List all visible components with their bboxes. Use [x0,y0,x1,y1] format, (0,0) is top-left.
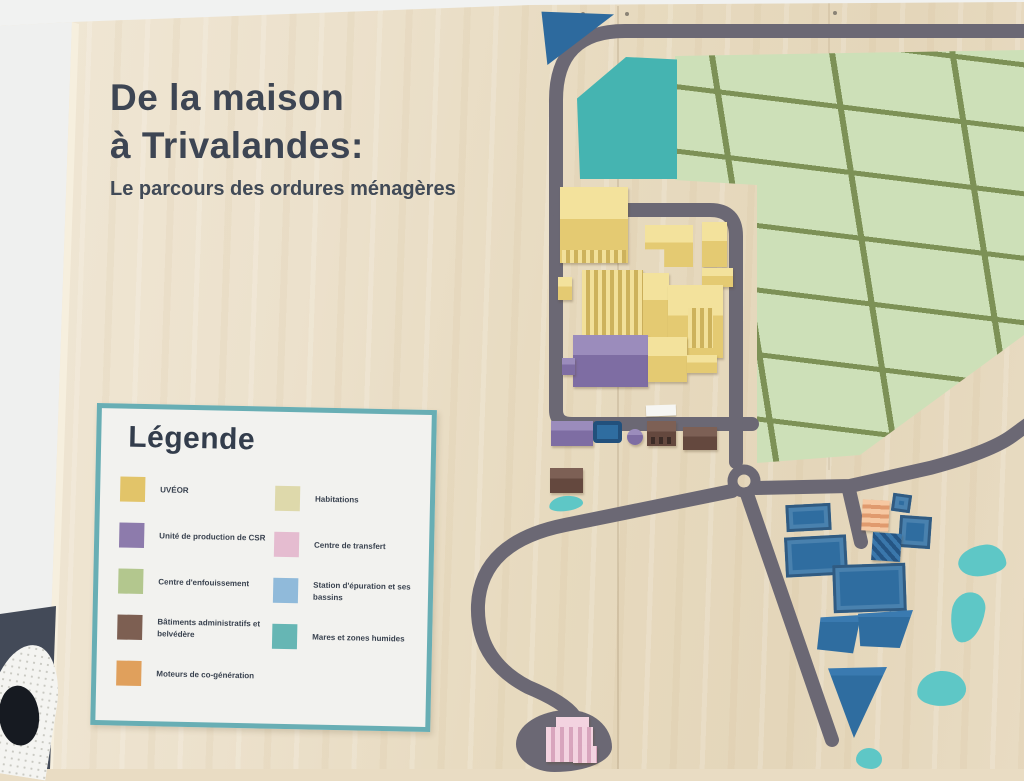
legend-swatch [119,522,145,548]
transfer-center-annex [573,746,597,763]
legend-swatch [275,486,301,512]
legend-swatch [272,624,298,650]
legend-card: Légende UVÉOR Unité de production de CSR… [90,403,437,732]
csr-unit-annex [562,358,575,375]
southwest-road [478,491,732,716]
cogeneration-building [861,499,890,531]
admin-building-doors [651,437,673,444]
legend-item-mares: Mares et zones humides [272,624,430,652]
roundabout [733,470,756,493]
legend-swatch [274,532,300,558]
uveor-tower [643,273,669,337]
uveor-building [702,222,727,267]
csr-unit-building [573,335,648,387]
legend-label: Station d'épuration et ses bassins [313,580,431,605]
uveor-building [648,337,687,382]
play-structure-hole [0,684,42,747]
legend-label: Centre de transfert [314,539,432,553]
legend-swatch [118,568,144,594]
basin [832,563,907,614]
uveor-building [558,277,572,300]
legend-label: Habitations [315,493,433,507]
legend-column-left: UVÉOR Unité de production de CSR Centre … [116,477,278,689]
road-sign [646,404,676,416]
legend-swatch [273,578,299,604]
purple-silo [627,429,643,445]
legend-item-epuration: Station d'épuration et ses bassins [273,578,431,606]
road-stub [849,490,861,542]
legend-label: Unité de production de CSR [159,530,277,544]
legend-item-enfouissement: Centre d'enfouissement [118,568,276,596]
wooden-display-board: De la maison à Trivalandes: Le parcours … [0,0,1024,769]
uveor-vents [688,308,713,348]
blue-tank [593,421,622,443]
legend-label: Moteurs de co-génération [156,668,274,682]
legend-item-moteurs: Moteurs de co-génération [116,660,274,688]
legend-label: UVÉOR [160,484,278,498]
basin [891,493,912,513]
legend-item-csr: Unité de production de CSR [119,522,277,550]
uveor-dock-doors [562,250,626,263]
legend-title: Légende [128,421,256,458]
legend-swatch [116,660,142,686]
legend-swatch [120,477,146,503]
admin-building [550,468,583,493]
legend-item-batiments: Bâtiments administratifs et belvédère [117,614,275,642]
legend-column-right: Habitations Centre de transfert Station … [272,486,433,652]
purple-service-building [551,421,593,446]
uveor-sawtooth-hall [582,270,643,335]
legend-label: Mares et zones humides [312,631,430,645]
legend-label: Bâtiments administratifs et belvédère [157,617,275,642]
aeration-basin [871,532,902,562]
pond [856,748,882,769]
legend-swatch [117,614,143,640]
legend-item-uveor: UVÉOR [120,477,278,505]
uveor-building [687,355,717,373]
basin [785,503,831,532]
legend-item-transfert: Centre de transfert [274,532,432,560]
basin [898,515,932,549]
legend-label: Centre d'enfouissement [158,576,276,590]
belvedere-building [683,427,717,450]
northeast-road [756,420,1024,488]
legend-item-habitations: Habitations [275,486,433,514]
